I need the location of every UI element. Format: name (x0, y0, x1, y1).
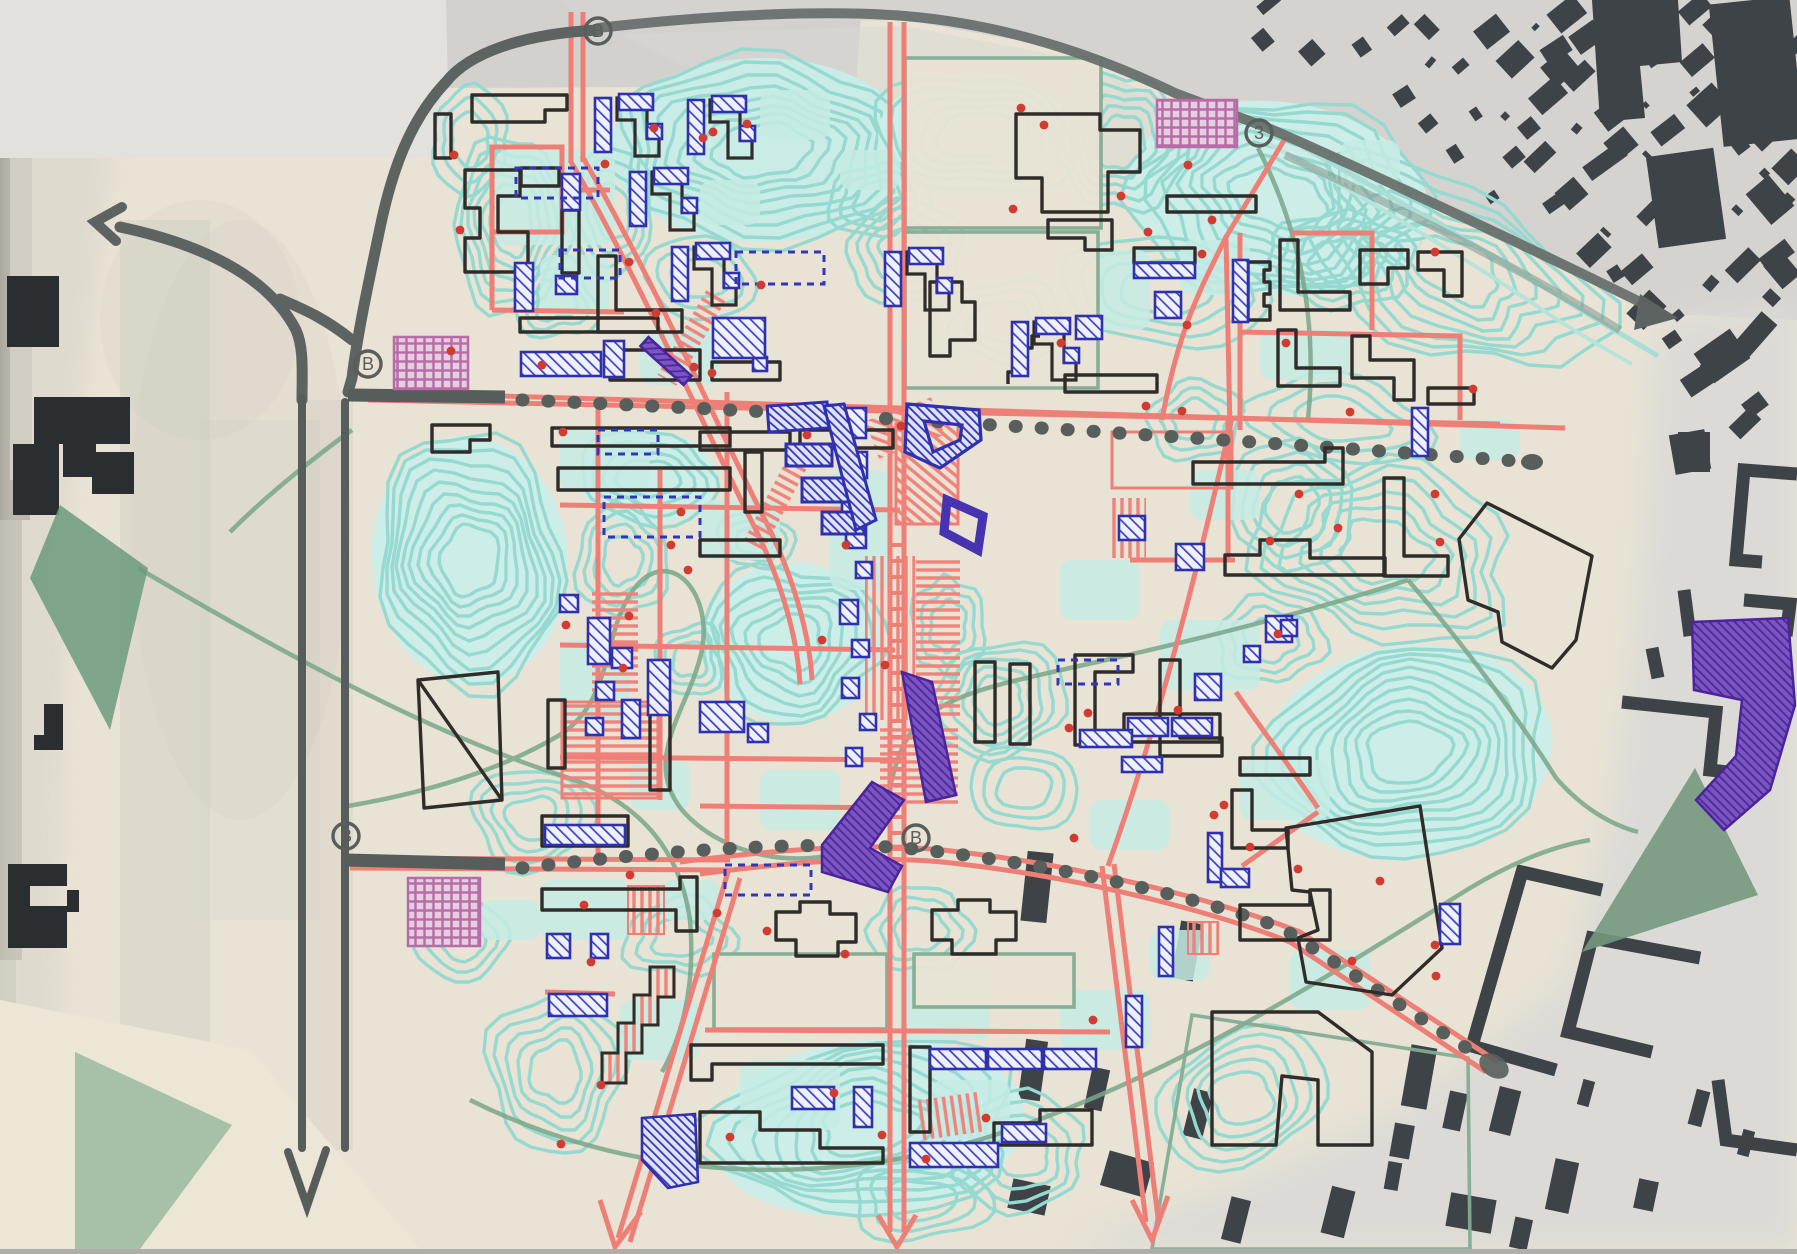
svg-text:3: 3 (1254, 123, 1264, 143)
svg-text:B: B (362, 354, 374, 374)
svg-text:B: B (592, 21, 604, 41)
svg-text:B: B (340, 826, 352, 846)
svg-text:B: B (910, 828, 922, 848)
